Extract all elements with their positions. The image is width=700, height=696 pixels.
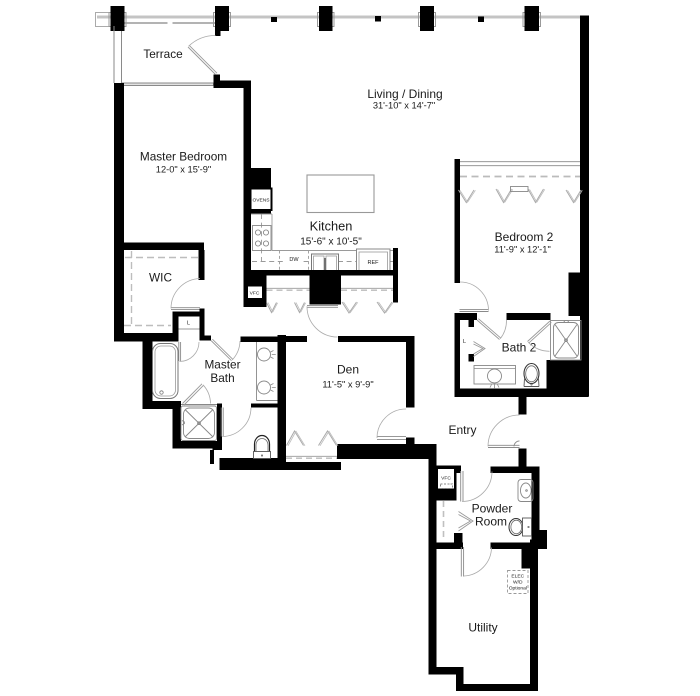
svg-text:Powder: Powder (472, 502, 513, 516)
svg-text:Master: Master (204, 358, 240, 372)
svg-text:11'-5" x 9'-9": 11'-5" x 9'-9" (322, 380, 373, 390)
svg-text:Living / Dining: Living / Dining (367, 87, 442, 101)
svg-text:Room: Room (475, 515, 507, 529)
svg-text:WIC: WIC (149, 271, 172, 285)
svg-text:Bath: Bath (210, 371, 234, 385)
svg-text:L: L (187, 321, 190, 327)
svg-text:Kitchen: Kitchen (310, 219, 353, 234)
svg-text:Terrace: Terrace (143, 47, 183, 61)
svg-text:Master Bedroom: Master Bedroom (140, 150, 227, 164)
svg-text:12-0" x 15'-9": 12-0" x 15'-9" (156, 165, 211, 175)
svg-text:DW: DW (289, 257, 299, 263)
svg-text:31'-10" x 14'-7": 31'-10" x 14'-7" (373, 101, 435, 111)
svg-text:Bedroom 2: Bedroom 2 (495, 230, 554, 244)
svg-text:VFC: VFC (250, 291, 260, 297)
svg-text:W/D: W/D (513, 580, 523, 586)
svg-text:Utility: Utility (468, 621, 497, 635)
svg-text:15'-6" x 10'-5": 15'-6" x 10'-5" (300, 237, 362, 248)
svg-text:VFC: VFC (441, 476, 451, 482)
svg-text:REF: REF (368, 260, 380, 266)
svg-text:Optional: Optional (509, 586, 527, 592)
svg-text:OVENS: OVENS (252, 198, 270, 204)
svg-text:Den: Den (337, 363, 359, 377)
svg-text:Entry: Entry (448, 423, 476, 437)
svg-text:Bath 2: Bath 2 (502, 341, 537, 355)
svg-text:L: L (463, 339, 466, 345)
svg-text:11'-9" x 12'-1": 11'-9" x 12'-1" (494, 245, 551, 255)
svg-text:ELEC: ELEC (511, 574, 524, 580)
